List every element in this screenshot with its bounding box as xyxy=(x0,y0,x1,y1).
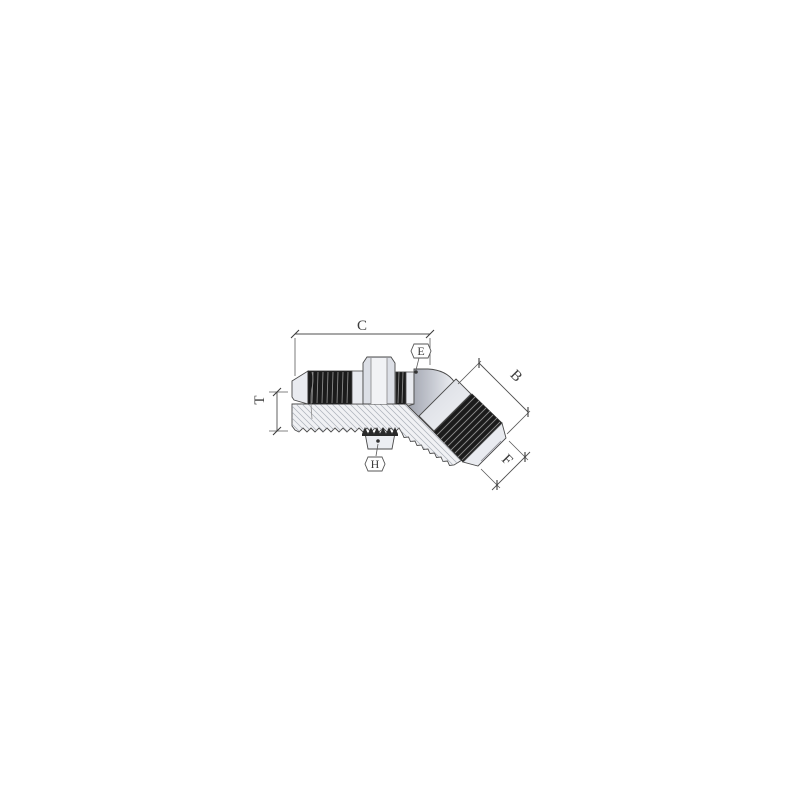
dim-label-c: C xyxy=(357,318,367,334)
mid-thread-block xyxy=(396,372,406,404)
mid-thread xyxy=(396,372,414,404)
callout-label-h: H xyxy=(371,457,380,471)
dim-label-b: B xyxy=(507,367,525,385)
callout-e: E xyxy=(411,344,431,370)
wrench-hex xyxy=(363,357,395,404)
flare-cone-left xyxy=(292,371,308,404)
drawing-canvas: C T B F xyxy=(0,0,800,800)
hex-center-facet xyxy=(371,358,387,404)
callout-label-e: E xyxy=(417,344,424,358)
dim-label-f: F xyxy=(498,452,515,469)
dim-label-t: T xyxy=(252,395,268,404)
fitting-body xyxy=(292,357,506,466)
left-collar xyxy=(352,371,363,404)
mid-collar xyxy=(406,372,414,404)
left-thread xyxy=(308,371,352,404)
fitting-diagram: C T B F xyxy=(0,0,800,800)
locknut-leader-dot xyxy=(376,439,380,443)
elbow-leader-dot xyxy=(414,370,418,374)
dimension-t: T xyxy=(252,388,288,435)
